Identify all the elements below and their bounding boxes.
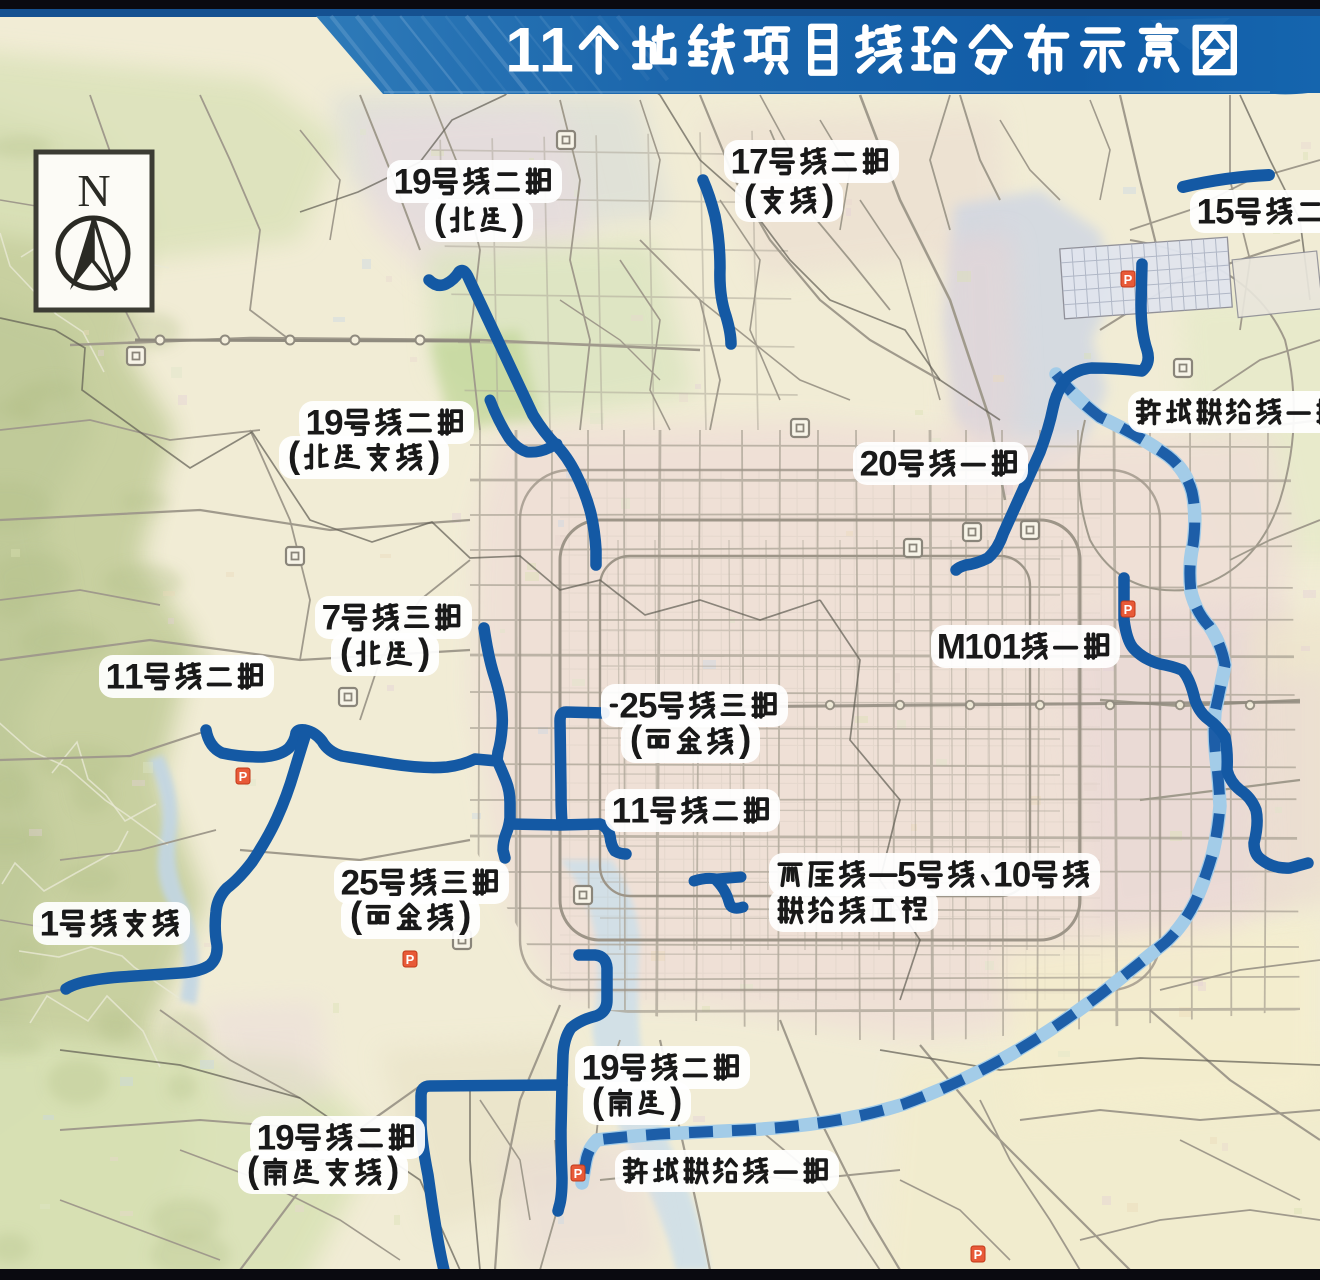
svg-text:): ) [670, 1080, 682, 1121]
svg-text:1: 1 [612, 791, 631, 830]
svg-text:(: ( [350, 894, 363, 935]
svg-text:2: 2 [860, 444, 879, 483]
svg-text:P: P [974, 1247, 983, 1262]
svg-text:(: ( [592, 1080, 605, 1121]
svg-text:): ) [822, 177, 834, 218]
svg-text:1: 1 [1001, 627, 1020, 666]
svg-text:9: 9 [412, 162, 431, 201]
svg-text:(: ( [288, 434, 301, 475]
svg-text:0: 0 [983, 627, 1002, 666]
svg-text:1: 1 [394, 162, 413, 201]
svg-text:): ) [512, 197, 524, 238]
svg-text:(: ( [630, 718, 643, 759]
svg-text:7: 7 [322, 598, 341, 637]
svg-text:): ) [387, 1149, 399, 1190]
svg-text:1: 1 [731, 142, 750, 181]
svg-text:P: P [239, 769, 248, 784]
svg-text:1: 1 [106, 657, 125, 696]
svg-text:1: 1 [505, 15, 540, 85]
svg-text:): ) [739, 718, 751, 759]
svg-text:5: 5 [1215, 192, 1234, 231]
svg-text:): ) [428, 434, 440, 475]
svg-text:): ) [418, 631, 430, 672]
svg-text:(: ( [434, 197, 447, 238]
svg-text:5: 5 [897, 855, 916, 894]
svg-text:1: 1 [1197, 192, 1216, 231]
svg-text:P: P [406, 952, 415, 967]
svg-text:): ) [459, 894, 471, 935]
svg-text:(: ( [247, 1149, 260, 1190]
svg-text:1: 1 [993, 855, 1012, 894]
svg-text:1: 1 [630, 791, 649, 830]
svg-text:0: 0 [1012, 855, 1031, 894]
svg-text:7: 7 [749, 142, 768, 181]
svg-text:0: 0 [878, 444, 897, 483]
svg-text:1: 1 [964, 627, 983, 666]
svg-text:1: 1 [40, 904, 59, 943]
svg-text:P: P [574, 1166, 583, 1181]
svg-text:M: M [937, 627, 966, 666]
svg-text:(: ( [744, 177, 757, 218]
svg-text:P: P [1124, 272, 1133, 287]
svg-text:P: P [1124, 602, 1133, 617]
svg-text:1: 1 [124, 657, 143, 696]
svg-text:N: N [77, 165, 110, 216]
svg-text:(: ( [340, 631, 353, 672]
svg-text:1: 1 [539, 15, 574, 85]
